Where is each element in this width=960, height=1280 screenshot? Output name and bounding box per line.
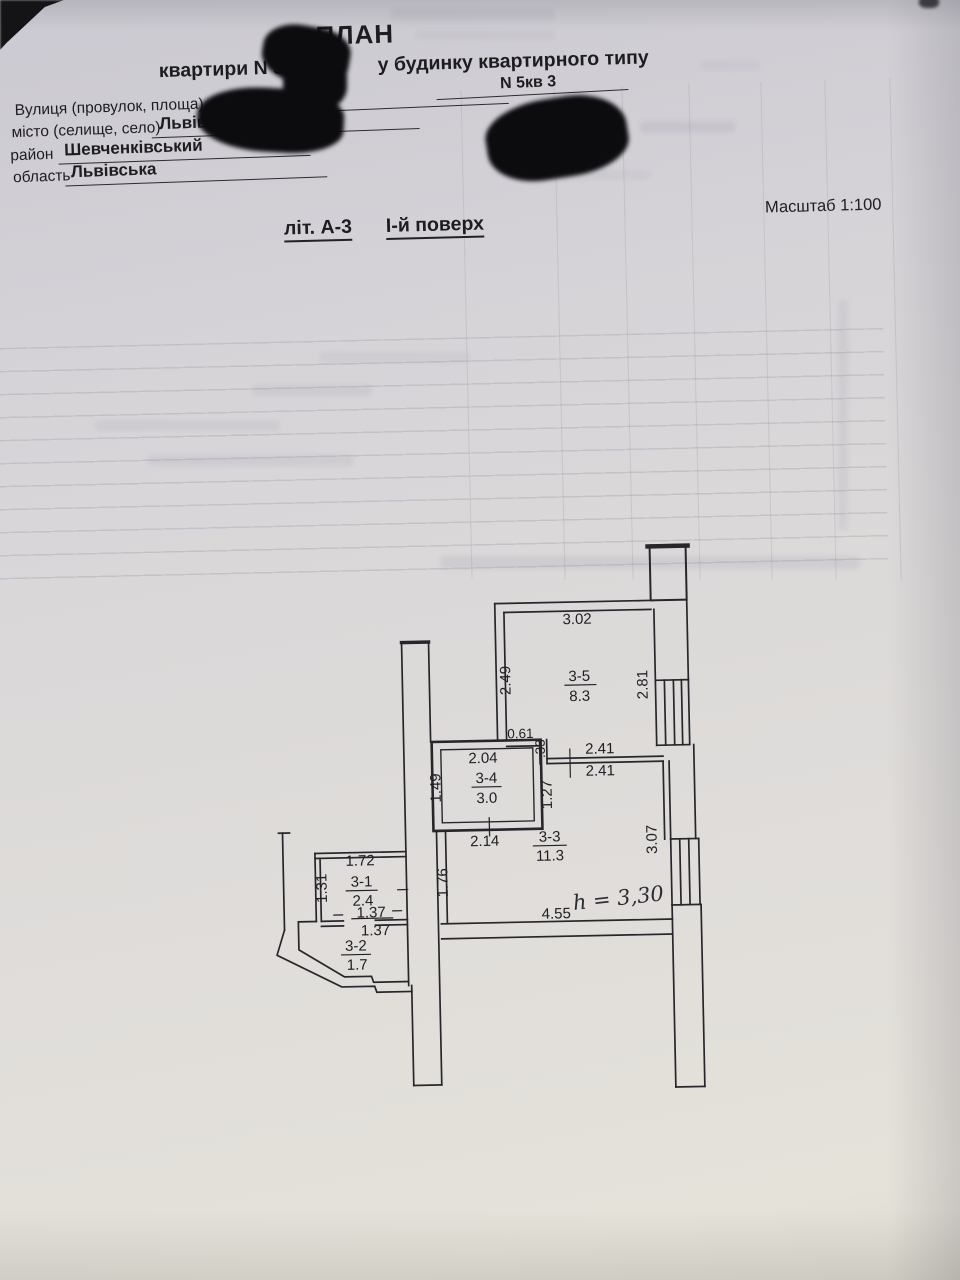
plan-walls [269,544,705,1095]
room-id: 3-3 [539,828,561,845]
dim-room31-left: 1.31 [313,874,331,904]
wall-right-band [663,745,696,840]
dim-room34-bottom: 2.14 [470,833,500,851]
dim-room35-width: 3.02 [562,611,592,629]
room-id: 3-5 [568,668,590,685]
room-id: 3-2 [345,937,367,954]
room-label-3-4: 3-4 3.0 [471,770,502,808]
room-id: 3-4 [475,770,497,787]
dim-room35-left: 2.49 [497,666,515,696]
room-label-3-3: 3-3 11.3 [532,828,567,865]
floor-plan: 3.02 2.49 2.81 3-5 8.3 0.61 .33 2.41 2.4… [0,0,960,1280]
dim-niche-width: 0.61 [507,726,534,742]
dim-room34-right: 1.27 [538,780,556,810]
photo-shadow-right [888,0,960,1280]
room-area: 8.3 [569,688,590,705]
dim-room34-left: 1.49 [427,773,445,803]
dim-room33-right: 3.07 [643,825,661,855]
dim-room35-right: 2.81 [634,670,652,700]
height-note-handwritten: h = 3,30 [572,881,665,915]
wall-corridor-column [402,642,451,1086]
wall-room35-right [654,600,689,681]
room-label-3-2: 3-2 1.7 [341,937,372,974]
room-area: 11.3 [536,847,564,865]
photo-shadow-bottom [0,1210,960,1280]
photo-edge-mark [919,0,939,8]
dim-passage-bottom: 2.41 [585,762,615,780]
wall-pillar-top-right [648,545,689,601]
dim-niche-depth: .33 [533,739,548,758]
photo-shadow-top [0,0,960,30]
dim-room31-width: 1.72 [345,852,375,870]
room-area: 3.0 [476,790,497,807]
window-room33 [671,838,700,905]
room-area: 1.7 [347,956,368,973]
dim-room34-width: 2.04 [468,750,498,768]
wall-outer-left [278,833,291,930]
dim-passage-top: 2.41 [585,740,615,758]
dim-room33-left: 1.76 [434,868,452,898]
window-room35 [655,680,689,746]
dim-room33-bottom: 4.55 [541,905,571,923]
wall-left-lower [412,985,442,1086]
room-id: 3-1 [351,873,373,890]
room-label-3-5: 3-5 8.3 [564,668,597,706]
wall-right-lower [672,904,705,1087]
scanned-floor-plan-page: ПЛАН квартири N 3 у будинку квартирного … [0,0,960,1280]
